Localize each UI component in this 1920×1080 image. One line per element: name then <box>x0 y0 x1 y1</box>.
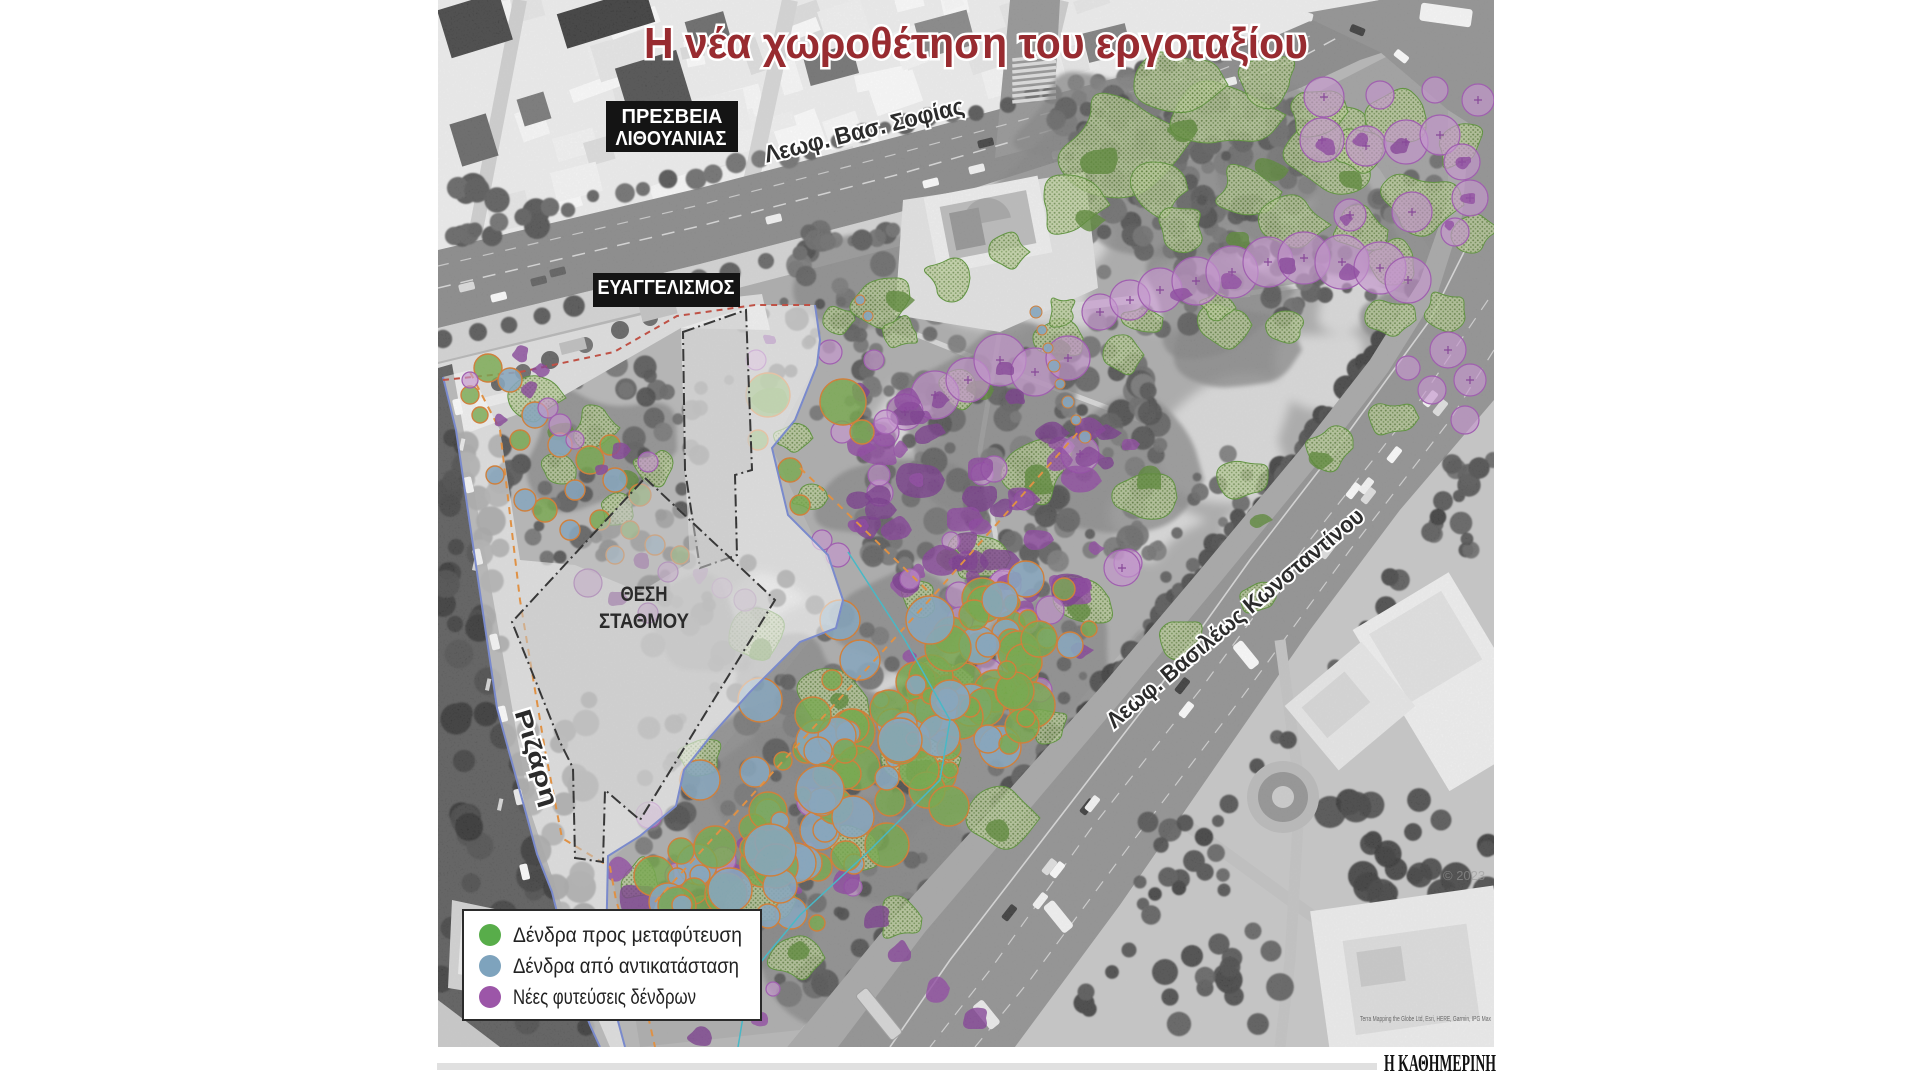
svg-text:Η ΚΑΘΗΜΕΡΙΝΗ: Η ΚΑΘΗΜΕΡΙΝΗ <box>1384 1051 1496 1077</box>
svg-text:© 2023: © 2023 <box>1443 868 1485 883</box>
svg-text:Δένδρα από αντικατάσταση: Δένδρα από αντικατάσταση <box>513 955 739 978</box>
svg-text:ΠΡΕΣΒΕΙΑ: ΠΡΕΣΒΕΙΑ <box>622 106 723 128</box>
svg-text:ΛΙΘΟΥΑΝΙΑΣ: ΛΙΘΟΥΑΝΙΑΣ <box>616 128 727 150</box>
svg-text:Δένδρα προς μεταφύτευση: Δένδρα προς μεταφύτευση <box>513 924 742 947</box>
svg-text:Η νέα χωροθέτηση του εργοταξίο: Η νέα χωροθέτηση του εργοταξίου <box>644 19 1308 68</box>
svg-text:ΘΕΣΗ: ΘΕΣΗ <box>621 583 668 606</box>
svg-text:Νέες φυτεύσεις δένδρων: Νέες φυτεύσεις δένδρων <box>513 986 696 1009</box>
svg-text:Terra Mapping the Globe Ltd, E: Terra Mapping the Globe Ltd, Esri, HERE,… <box>1360 1014 1491 1023</box>
svg-text:ΣΤΑΘΜΟΥ: ΣΤΑΘΜΟΥ <box>599 610 689 633</box>
svg-text:ΕΥΑΓΓΕΛΙΣΜΟΣ: ΕΥΑΓΓΕΛΙΣΜΟΣ <box>598 277 735 299</box>
